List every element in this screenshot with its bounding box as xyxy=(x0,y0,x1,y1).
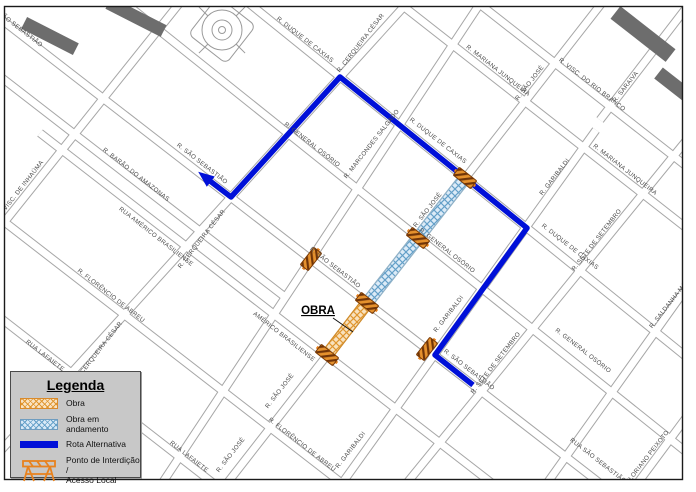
roundabout-inner xyxy=(219,27,226,34)
legend-label-interdicao: Ponto de Interdição / Acesso Local xyxy=(66,455,140,486)
obra-callout-label: OBRA xyxy=(301,305,335,317)
legend-item-obra-andamento: Obra em andamento xyxy=(20,414,140,434)
obra-andamento-swatch xyxy=(20,419,58,430)
barrier-icon xyxy=(20,457,58,483)
rota-alternativa-swatch xyxy=(20,441,58,448)
traffic-diversion-map-page: R. VISC. DO RIO BRANCOR. MARIANA JUNQUEI… xyxy=(0,0,696,492)
legend-title: Legenda xyxy=(11,377,140,393)
legend-label-rota: Rota Alternativa xyxy=(66,439,126,449)
legend-item-obra: Obra xyxy=(20,398,140,409)
legend-label-obra: Obra xyxy=(66,398,85,408)
legend-item-interdicao: Ponto de Interdição / Acesso Local xyxy=(20,455,140,486)
legend-item-rota: Rota Alternativa xyxy=(20,439,140,449)
obra-swatch xyxy=(20,398,58,409)
legend-label-obra-andamento: Obra em andamento xyxy=(66,414,140,434)
legend-box: Legenda Obra Obra em andamento Rota Alte… xyxy=(10,371,141,478)
